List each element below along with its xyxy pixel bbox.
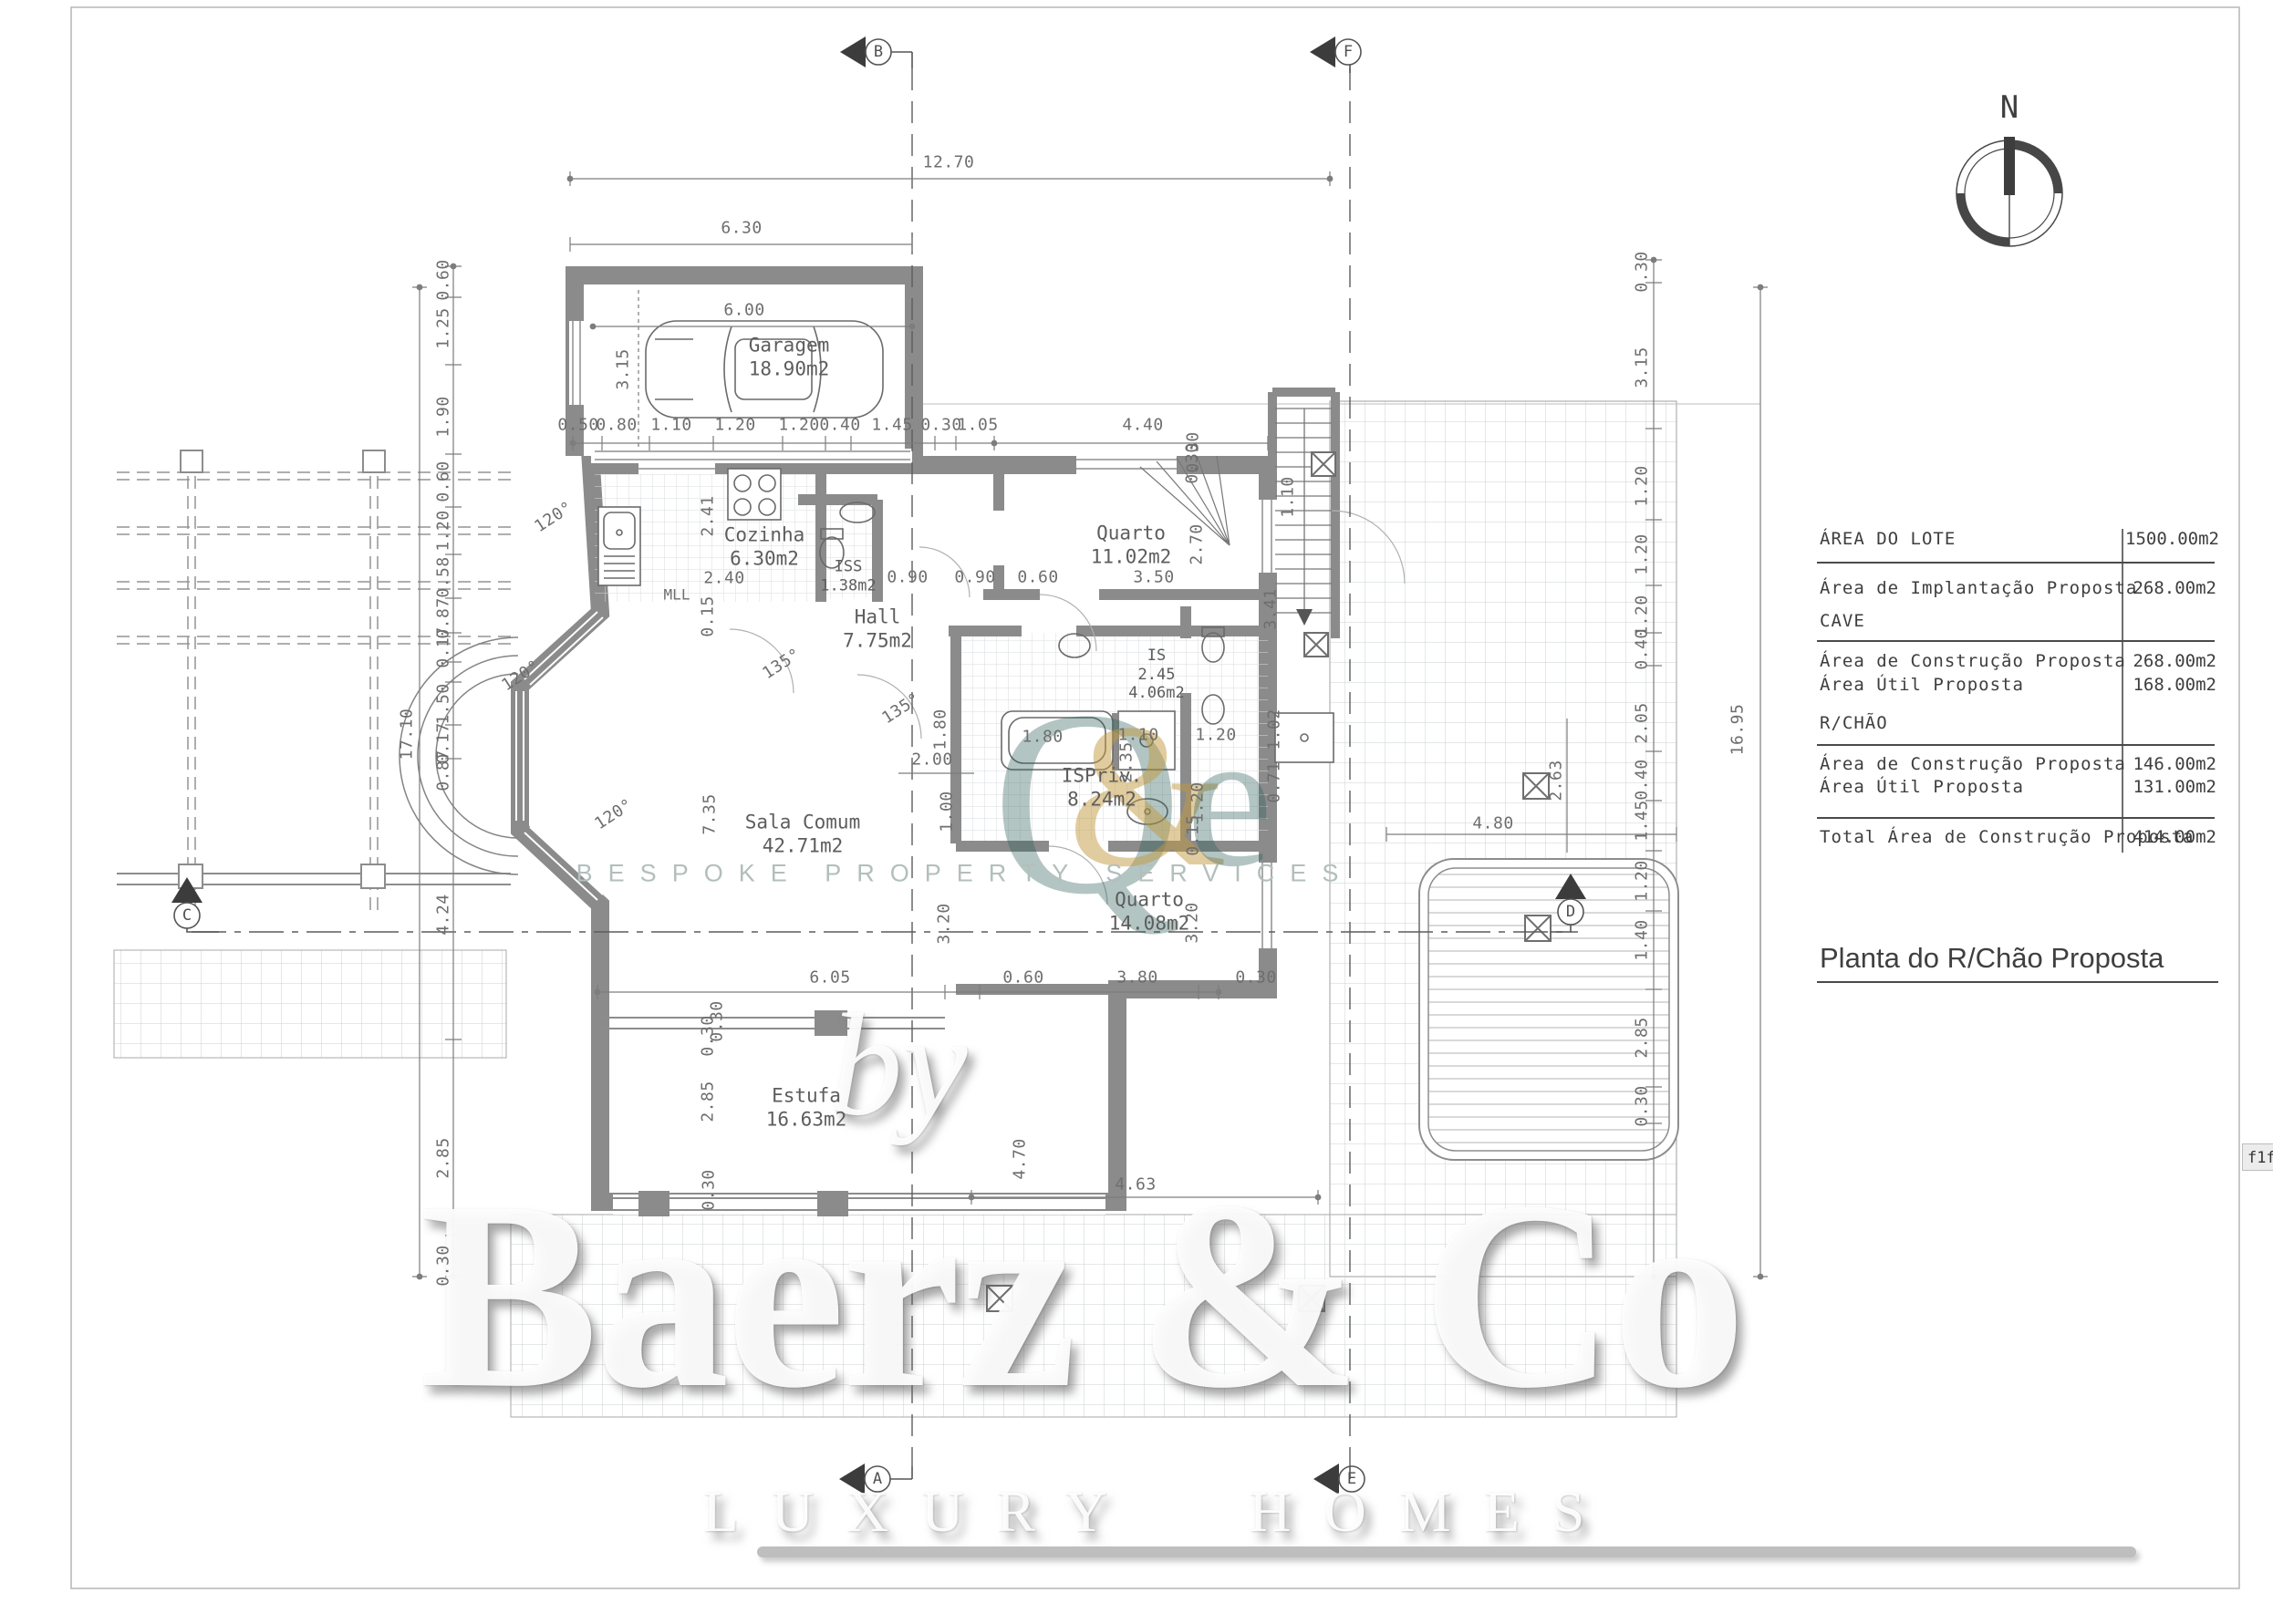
table-row-implant-label: Área de Implantação Proposta (1820, 578, 2137, 598)
dimension-label: 1.40 (1633, 919, 1652, 960)
dimension-label: 4.70 (1011, 1138, 1030, 1179)
section-marker-d: D (1566, 903, 1575, 921)
section-marker-c: C (182, 906, 192, 925)
dimension-label: 2.40 (703, 569, 744, 588)
room-label-estufa: Estufa16.63m2 (766, 1084, 847, 1131)
dimension-label: 1.20 (1633, 533, 1652, 574)
table-row-lot-value: 1500.00m2 (2125, 529, 2216, 549)
mll-label: MLL (664, 586, 690, 604)
table-subheader-rchao: R/CHÃO (1820, 713, 1888, 733)
room-label-iss: ISS1.38m2 (820, 557, 876, 595)
floorplan-sheet: { "title": "Planta do R/Chão Proposta", … (0, 0, 2273, 1624)
table-row-rchao-constr-value: 146.00m2 (2125, 754, 2216, 774)
dimension-label: 0.30 (1633, 251, 1652, 292)
dimension-label: 0.30 (1235, 968, 1276, 988)
dimension-label: 1.80 (931, 709, 950, 750)
dimension-label: 7.35 (701, 793, 720, 834)
dimension-label: 0.71 (1265, 761, 1284, 802)
dimension-label: 1.50 (434, 683, 453, 724)
dimension-label: 1.02 (1265, 709, 1284, 750)
table-row-implant-value: 268.00m2 (2125, 578, 2216, 598)
dimension-label: 0.15 (699, 595, 718, 636)
room-label-quarto-2: Quarto14.08m2 (1109, 888, 1190, 935)
dimension-label: 0.30 (1633, 1085, 1652, 1126)
table-row-rchao-util-value: 131.00m2 (2125, 777, 2216, 797)
garage-window (569, 321, 586, 405)
dimension-label: 0.60 (1002, 968, 1043, 988)
overall-dimension-left: 17.10 (398, 709, 417, 760)
room-label-is: IS2.454.06m2 (1128, 646, 1184, 703)
dimension-label: 0.87 (434, 750, 453, 791)
dimension-label: 2.85 (434, 1137, 453, 1178)
room-label-sala-comum: Sala Comum42.71m2 (745, 811, 860, 857)
dimension-label: 0.30 (700, 1169, 719, 1210)
dimension-label: 2.70 (1188, 523, 1207, 564)
dimension-label: 0.30 (920, 416, 961, 435)
dimension-label: 2.05 (1633, 702, 1652, 743)
dimension-label: 1.20 (778, 416, 819, 435)
dimension-label: 0.30 (434, 1245, 453, 1286)
dimension-label: 6.00 (723, 301, 764, 320)
curved-steps (400, 637, 518, 874)
dimension-label: 1.20 (714, 416, 755, 435)
dimension-label: 4.40 (1122, 416, 1163, 435)
dimension-label: 1.90 (434, 396, 453, 437)
north-compass (1956, 137, 2062, 246)
dimension-label: 4.63 (1115, 1175, 1156, 1195)
table-row-cave-constr-label: Área de Construção Proposta (1820, 651, 2126, 671)
dimension-label: 1.20 (1633, 465, 1652, 506)
dimension-label: 0.90 (954, 568, 995, 587)
table-row-cave-util-value: 168.00m2 (2125, 675, 2216, 695)
dimension-label: 1.10 (650, 416, 691, 435)
room-label-cozinha: Cozinha6.30m2 (724, 523, 805, 570)
dimension-label: 3.15 (1633, 347, 1652, 388)
dimension-label: 0.40 (819, 416, 860, 435)
section-marker-f: F (1344, 43, 1353, 61)
dimension-label: 1.45 (1633, 800, 1652, 841)
dimension-label: 1.20 (434, 510, 453, 551)
table-row-total-value: 414.00m2 (2125, 827, 2216, 847)
room-label-quarto-1: Quarto11.02m2 (1091, 522, 1172, 568)
dimension-label: 6.30 (721, 219, 762, 238)
dimension-label: 1.25 (434, 307, 453, 348)
dimension-label: 2.00 (911, 750, 952, 770)
dimension-label: 0.15 (1184, 814, 1203, 855)
dimension-label: 0.50 (557, 416, 598, 435)
dimension-label: 4.80 (1472, 814, 1513, 833)
dimension-label: 4.24 (434, 894, 453, 935)
dimension-label: 0.58 (434, 556, 453, 597)
dimension-label: 1.45 (871, 416, 912, 435)
dimension-label: 0.30 (1183, 442, 1202, 483)
dimension-label: 0.80 (596, 416, 637, 435)
dimension-label: 12.70 (923, 153, 975, 172)
dimension-label: 1.20 (1195, 726, 1236, 745)
dimension-label: 2.41 (699, 495, 718, 536)
dimension-label: 3.50 (1133, 568, 1174, 587)
dimension-label: 0.17 (434, 626, 453, 667)
room-label-garagem: Garagem18.90m2 (749, 334, 830, 380)
dimension-label: 1.05 (957, 416, 998, 435)
table-subheader-cave: CAVE (1820, 611, 1865, 631)
dimension-label: 0.60 (1017, 568, 1058, 587)
dimension-label: 3.20 (935, 903, 954, 944)
dimension-label: 3.41 (1261, 588, 1281, 629)
dimension-label: 1.00 (938, 791, 957, 832)
page-title: Planta do R/Chão Proposta (1820, 942, 2164, 975)
dimension-label: 0.60 (434, 259, 453, 300)
dimension-label: 0.40 (1633, 759, 1652, 800)
dimension-label: 2.63 (1547, 760, 1566, 801)
overall-dimension-right: 16.95 (1728, 704, 1748, 756)
dimension-label: 2.85 (1633, 1017, 1652, 1058)
section-marker-a: A (873, 1470, 882, 1488)
table-row-rchao-constr-label: Área de Construção Proposta (1820, 754, 2126, 774)
table-row-cave-constr-value: 268.00m2 (2125, 651, 2216, 671)
dimension-label: 0.30 (699, 1015, 718, 1056)
north-label: N (2000, 89, 2019, 126)
dimension-label: 0.60 (434, 460, 453, 502)
dimension-label: 1.20 (1633, 860, 1652, 901)
table-row-cave-util-label: Área Útil Proposta (1820, 675, 2024, 695)
dimension-label: 6.05 (809, 968, 850, 988)
watermark-rule (757, 1546, 2136, 1557)
dimension-label: 3.80 (1116, 968, 1157, 988)
dimension-label: 2.85 (699, 1081, 718, 1122)
section-marker-e: E (1347, 1470, 1356, 1488)
dimension-label: 2.35 (1117, 741, 1136, 782)
table-row-rchao-util-label: Área Útil Proposta (1820, 777, 2024, 797)
dimension-label: 1.80 (1022, 728, 1063, 747)
section-marker-b: B (874, 43, 883, 61)
clipped-tooltip-artifact: f1f (2242, 1143, 2273, 1171)
table-row-lot-label: ÁREA DO LOTE (1820, 529, 1956, 549)
dimension-label: 0.90 (887, 568, 928, 587)
floorplan-drawing (0, 0, 2273, 1624)
dimension-label: 1.10 (1279, 476, 1298, 517)
dimension-label: 3.15 (614, 348, 633, 389)
dimension-label: 3.20 (1183, 902, 1202, 943)
room-label-hall: Hall7.75m2 (843, 605, 912, 652)
dimension-label: 0.40 (1633, 628, 1652, 669)
